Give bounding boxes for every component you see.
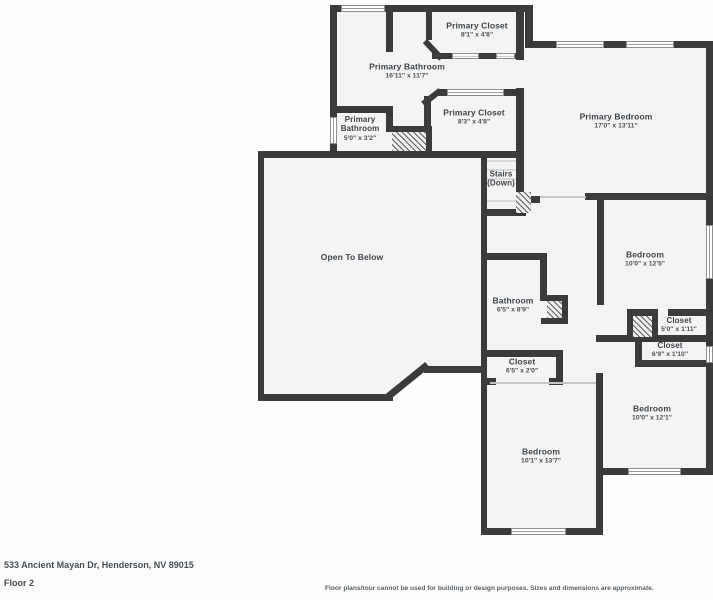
- stair-landing-hatch: [516, 192, 531, 213]
- disclaimer-text: Floor plans/tour cannot be used for buil…: [325, 585, 654, 592]
- window: [628, 468, 681, 475]
- wall: [386, 12, 393, 52]
- room-label-primary-bedroom: Primary Bedroom 17'0" x 13'11": [580, 111, 653, 130]
- room-name: Primary Bathroom: [369, 61, 445, 71]
- room-name: Closet: [661, 316, 697, 325]
- stairs-direction: (Down): [487, 179, 515, 188]
- room-name: Closet: [506, 356, 538, 366]
- wall: [541, 318, 568, 324]
- shower-hatch: [547, 301, 562, 318]
- room-label-primary-bathroom-small: Primary Bathroom 5'0" x 3'2": [331, 115, 389, 143]
- room-label-bedroom-bottom: Bedroom 10'1" x 13'7": [521, 446, 561, 465]
- window: [626, 41, 674, 48]
- floor-label: Floor 2: [4, 578, 34, 588]
- room-dimensions: 6'5" x 8'9": [493, 307, 534, 315]
- door-opening: [496, 53, 515, 59]
- room-dimensions: 16'11" x 11'7": [369, 73, 445, 81]
- room-label-closet-right-2: Closet 6'9" x 1'10": [652, 341, 688, 359]
- door-opening: [452, 53, 479, 59]
- room-name: Primary Closet: [446, 20, 507, 30]
- room-label-open-to-below: Open To Below: [321, 252, 384, 262]
- room-name: Bedroom: [625, 249, 665, 259]
- wall: [258, 394, 393, 401]
- window: [706, 225, 713, 279]
- stair-step-line: [487, 200, 516, 202]
- wall: [424, 366, 487, 373]
- window: [706, 346, 713, 363]
- room-dimensions: 5'0" x 1'11": [661, 326, 697, 334]
- wall: [635, 360, 706, 367]
- doorway-fill: [516, 58, 526, 90]
- window: [556, 41, 604, 48]
- opening-line: [490, 382, 596, 384]
- room-label-bedroom-upper-right: Bedroom 10'0" x 12'5": [625, 249, 665, 268]
- room-name: Primary Bathroom: [331, 115, 389, 134]
- room-name: Primary Closet: [443, 107, 504, 117]
- room-name: Primary Bedroom: [580, 111, 653, 121]
- room-dimensions: 10'0" x 12'5": [625, 261, 665, 269]
- room-dimensions: 6'9" x 1'10": [652, 351, 688, 359]
- room-label-bathroom: Bathroom 6'5" x 8'9": [493, 295, 534, 314]
- window: [511, 528, 566, 535]
- wall: [481, 151, 487, 535]
- wall: [481, 253, 547, 260]
- room-label-stairs: Stairs (Down): [487, 170, 515, 189]
- room-label-primary-closet-top: Primary Closet 8'1" x 4'8": [446, 20, 507, 39]
- room-name: Bedroom: [632, 403, 672, 413]
- stair-step-line: [487, 160, 516, 162]
- closet-hatch: [633, 316, 652, 337]
- room-dimensions: 17'0" x 13'11": [580, 123, 653, 131]
- room-dimensions: 10'1" x 13'7": [521, 458, 561, 466]
- room-label-primary-closet-2: Primary Closet 8'3" x 4'8": [443, 107, 504, 126]
- shower-hatch: [392, 132, 426, 151]
- address-label: 533 Ancient Mayan Dr, Henderson, NV 8901…: [4, 560, 194, 570]
- opening-line: [540, 196, 586, 198]
- window: [447, 89, 504, 96]
- room-dimensions: 8'3" x 4'8": [443, 119, 504, 127]
- window: [341, 5, 385, 12]
- room-name: Bathroom: [493, 295, 534, 305]
- floor-plan: Primary Closet 8'1" x 4'8" Primary Bathr…: [0, 0, 713, 600]
- room-dimensions: 6'5" x 2'0": [506, 368, 538, 376]
- room-label-closet-hall: Closet 6'5" x 2'0": [506, 356, 538, 375]
- wall: [516, 151, 524, 192]
- room-label-primary-bathroom: Primary Bathroom 16'11" x 11'7": [369, 61, 445, 80]
- wall: [585, 193, 713, 200]
- wall: [258, 151, 264, 401]
- room-label-bedroom-lower-right: Bedroom 10'0" x 12'1": [632, 403, 672, 422]
- wall: [540, 253, 547, 301]
- room-dimensions: 10'0" x 12'1": [632, 415, 672, 423]
- room-dimensions: 8'1" x 4'8": [446, 32, 507, 40]
- room-dimensions: 5'0" x 3'2": [331, 135, 389, 143]
- room-name: Stairs: [487, 170, 515, 179]
- room-name: Bedroom: [521, 446, 561, 456]
- wall: [596, 373, 603, 535]
- wall: [597, 200, 604, 305]
- wall: [334, 106, 392, 113]
- room-label-closet-right-1: Closet 5'0" x 1'11": [661, 316, 697, 334]
- wall: [516, 88, 524, 151]
- wall: [516, 12, 524, 60]
- room-name: Open To Below: [321, 252, 384, 262]
- room-name: Closet: [652, 341, 688, 350]
- wall: [426, 12, 432, 40]
- open-to-below-area: [264, 158, 481, 394]
- wall: [525, 41, 713, 48]
